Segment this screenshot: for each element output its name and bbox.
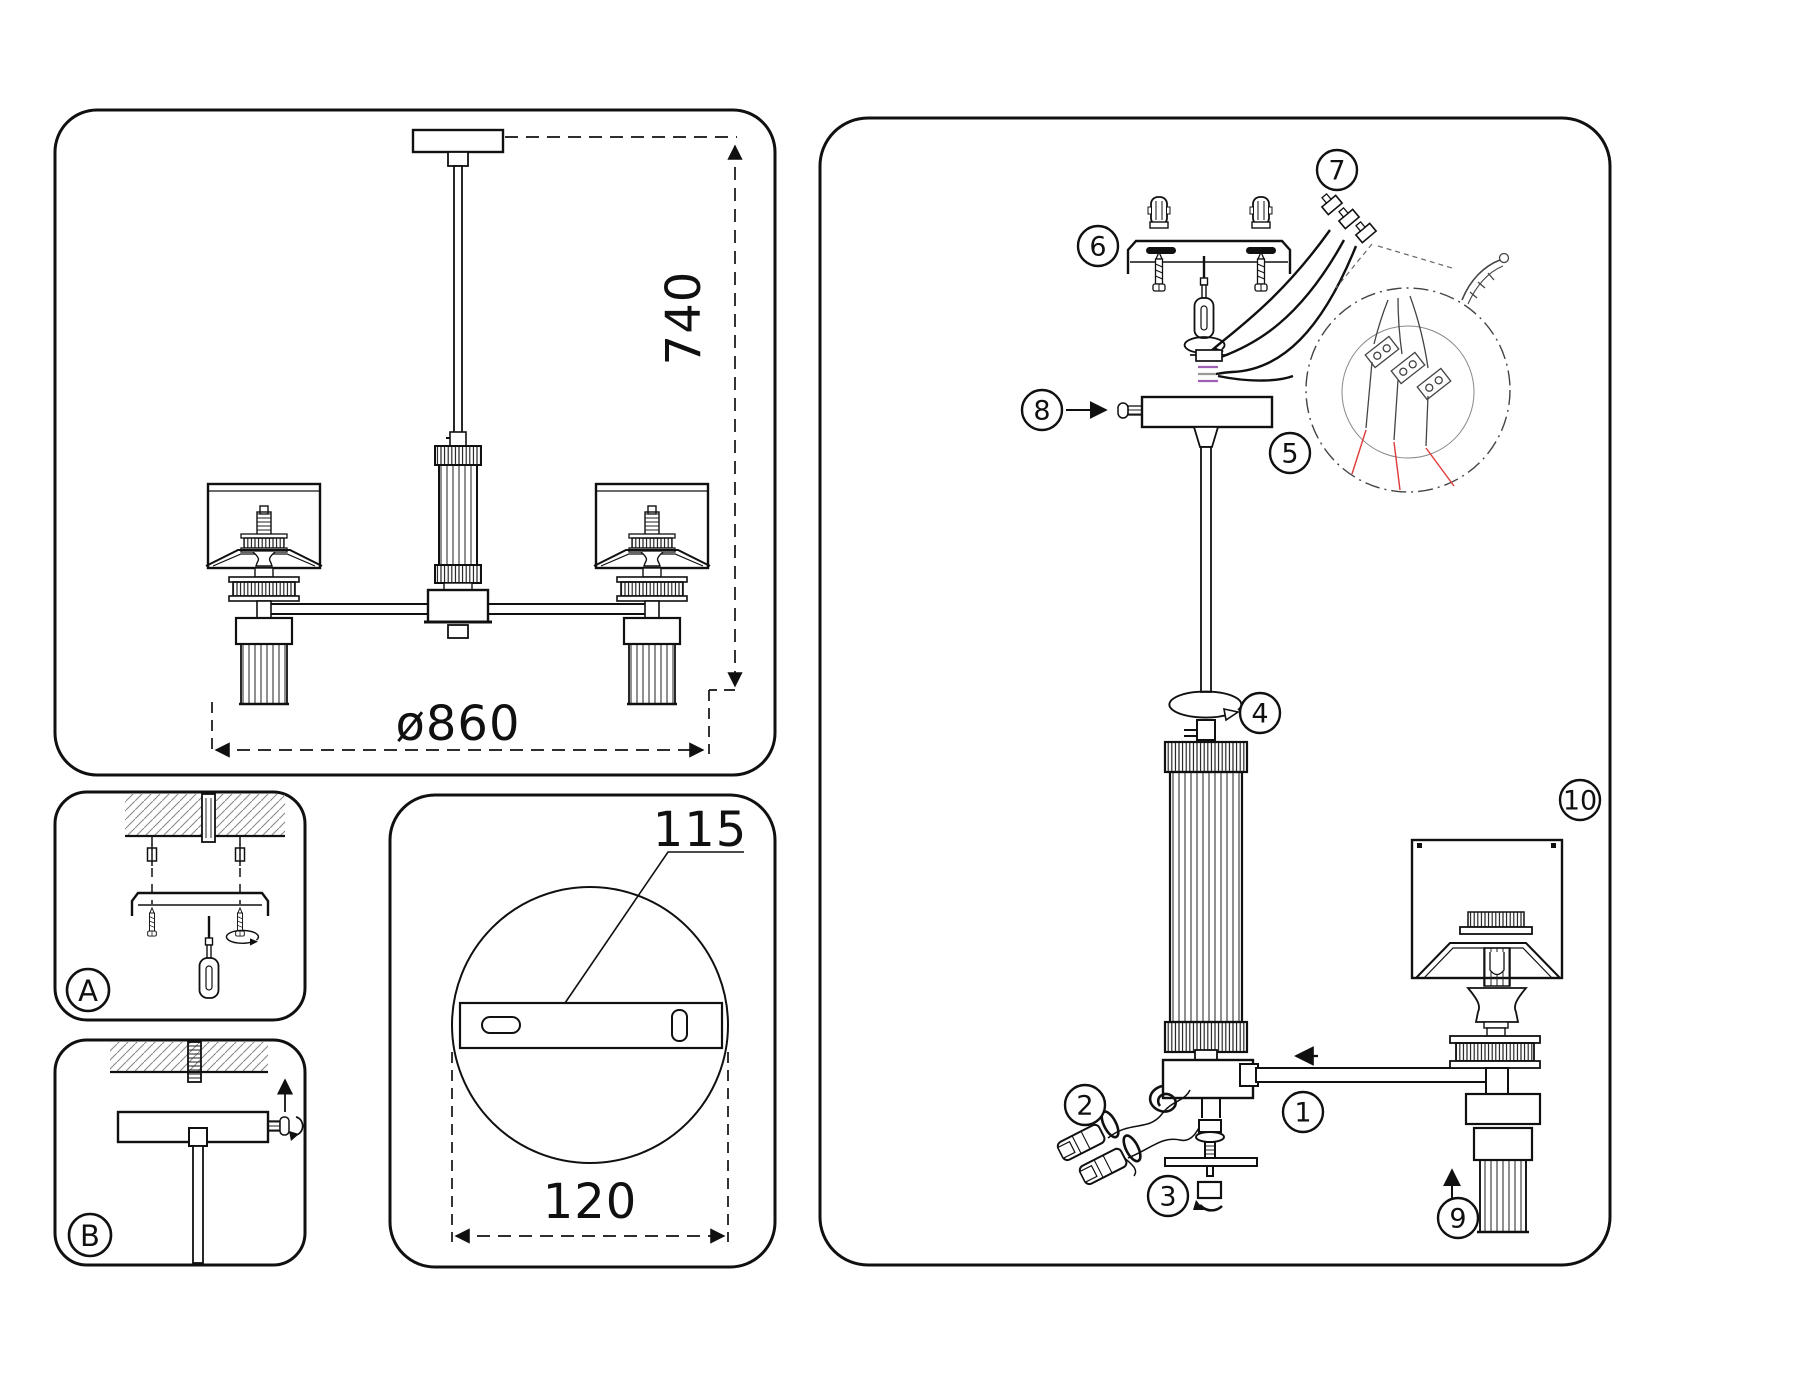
svg-text:2: 2 [1076, 1091, 1093, 1122]
svg-text:1: 1 [1294, 1098, 1311, 1129]
svg-text:5: 5 [1281, 439, 1298, 470]
threaded-stub [188, 1042, 201, 1082]
canopy-plate [1142, 397, 1272, 427]
wall-plug-icon [1148, 197, 1170, 228]
dim-height-label: 740 [656, 271, 712, 366]
panel-step-b: B [55, 1040, 305, 1265]
center-column [435, 446, 481, 590]
column-body [1165, 742, 1247, 1060]
panel-assembly: 1 2 3 4 5 6 7 8 9 10 [820, 118, 1610, 1265]
wall-plug-icon [1250, 197, 1272, 228]
dim-120-label: 120 [543, 1174, 638, 1230]
svg-text:A: A [78, 974, 98, 1008]
svg-text:6: 6 [1089, 232, 1106, 263]
step-a-badge: A [67, 969, 109, 1011]
bracket-bar [460, 1003, 722, 1048]
panel-step-a: A [55, 792, 305, 1020]
ceiling-plate [413, 130, 503, 152]
instruction-sheet: 740 ø860 [0, 0, 1800, 1400]
callout-4-badge: 4 [1240, 693, 1280, 733]
callout-6-badge: 6 [1078, 226, 1118, 266]
panel-bracket-detail: 115 120 [390, 795, 775, 1267]
callout-5-badge: 5 [1270, 433, 1310, 473]
down-rod [454, 166, 462, 434]
svg-text:7: 7 [1328, 156, 1345, 187]
pendant-column [1474, 1128, 1532, 1232]
arm-tube [1256, 1068, 1488, 1082]
step-b-badge: B [69, 1214, 111, 1256]
svg-text:9: 9 [1449, 1204, 1466, 1235]
down-rod [1201, 447, 1211, 692]
dim-diameter-label: ø860 [396, 696, 521, 752]
svg-text:8: 8 [1033, 396, 1050, 427]
diagram-canvas: 740 ø860 [0, 0, 1800, 1400]
ceiling-stub [202, 794, 215, 842]
callout-9-badge: 9 [1438, 1198, 1478, 1238]
svg-text:B: B [80, 1219, 100, 1253]
panel-dimension-view: 740 ø860 [55, 110, 775, 775]
svg-text:3: 3 [1159, 1182, 1176, 1213]
callout-7-badge: 7 [1317, 150, 1357, 190]
callout-10-badge: 10 [1560, 780, 1600, 820]
wire-connector [1196, 350, 1222, 361]
slot-vertical [672, 1010, 687, 1041]
callout-8-badge: 8 [1022, 390, 1062, 430]
down-rod [193, 1146, 203, 1263]
svg-text:10: 10 [1563, 786, 1597, 817]
dim-115-label: 115 [653, 802, 748, 858]
callout-1-badge: 1 [1283, 1092, 1323, 1132]
callout-2-badge: 2 [1065, 1085, 1105, 1125]
callout-3-badge: 3 [1148, 1176, 1188, 1216]
svg-text:4: 4 [1251, 699, 1268, 730]
slot-horizontal [482, 1017, 520, 1033]
